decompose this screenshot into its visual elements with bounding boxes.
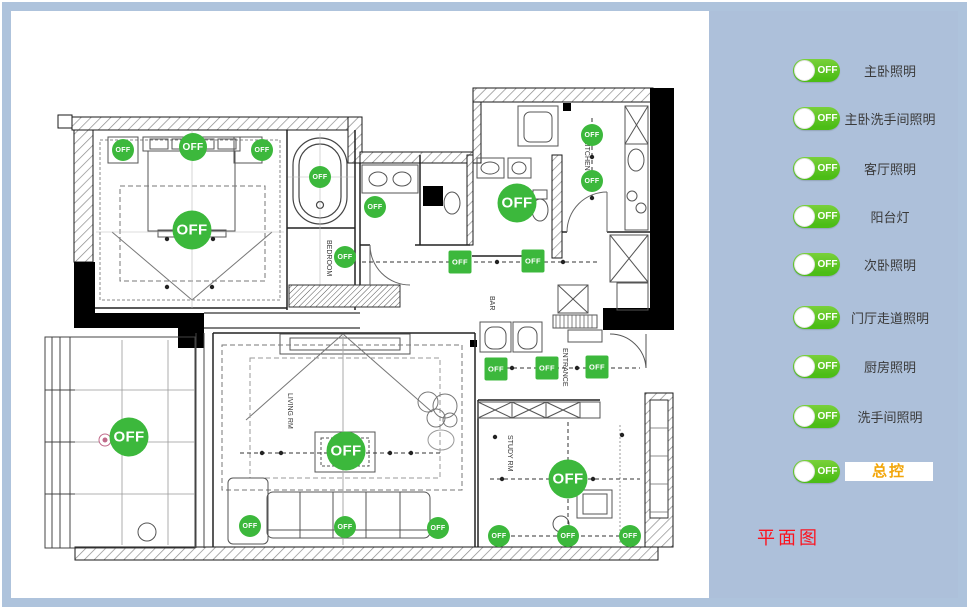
plan-light-button-6[interactable]: OFF xyxy=(364,196,386,218)
plan-light-button-23[interactable]: OFF xyxy=(557,525,579,547)
plan-light-button-1[interactable]: OFF xyxy=(112,139,134,161)
toggle-knob xyxy=(794,461,815,482)
caption-floor-plan-label: 平面图 xyxy=(757,524,820,550)
toggle-state-label: OFF xyxy=(815,65,840,76)
toggle-label-living-room-light: 客厅照明 xyxy=(842,159,938,178)
plan-light-button-15[interactable]: OFF xyxy=(239,515,261,537)
toggle-label-master-bathroom-light: 主卧洗手间照明 xyxy=(842,109,938,128)
plan-light-button-22[interactable]: OFF xyxy=(488,525,510,547)
toggle-living-room-light[interactable]: OFF xyxy=(793,157,840,180)
toggle-hallway-corridor-light[interactable]: OFF xyxy=(793,306,840,329)
plan-light-button-8[interactable]: OFF xyxy=(498,184,537,223)
toggle-state-label: OFF xyxy=(815,259,840,270)
plan-light-button-7[interactable]: OFF xyxy=(334,246,356,268)
toggle-row-hallway-corridor-light: OFF门厅走道照明 xyxy=(793,306,938,329)
plan-light-button-14[interactable]: OFF xyxy=(327,432,366,471)
toggle-knob xyxy=(794,60,815,81)
toggle-knob xyxy=(794,254,815,275)
toggle-row-kitchen-light: OFF厨房照明 xyxy=(793,355,938,378)
toggle-row-master-bedroom-light: OFF主卧照明 xyxy=(793,59,938,82)
toggle-master-bathroom-light[interactable]: OFF xyxy=(793,107,840,130)
toggle-label-master-switch: 总控 xyxy=(845,462,933,481)
toggle-second-bedroom-light[interactable]: OFF xyxy=(793,253,840,276)
smart-home-panel: KITCHEN ENTRANCE STUDY RM LIVING RM BEDR… xyxy=(0,0,969,609)
toggle-knob xyxy=(794,307,815,328)
toggle-master-switch[interactable]: OFF xyxy=(793,460,840,483)
plan-light-button-21[interactable]: OFF xyxy=(549,460,588,499)
plan-light-button-5[interactable]: OFF xyxy=(309,166,331,188)
plan-light-button-2[interactable]: OFF xyxy=(179,133,207,161)
toggle-knob xyxy=(794,158,815,179)
plan-light-button-19[interactable]: OFF xyxy=(536,357,559,380)
plan-light-button-13[interactable]: OFF xyxy=(110,418,149,457)
toggle-label-hallway-corridor-light: 门厅走道照明 xyxy=(842,308,938,327)
plan-light-button-3[interactable]: OFF xyxy=(251,139,273,161)
toggle-knob xyxy=(794,356,815,377)
toggle-row-master-bathroom-light: OFF主卧洗手间照明 xyxy=(793,107,938,130)
toggle-bathroom-light[interactable]: OFF xyxy=(793,405,840,428)
plan-light-button-12[interactable]: OFF xyxy=(522,250,545,273)
toggle-row-second-bedroom-light: OFF次卧照明 xyxy=(793,253,938,276)
toggle-state-label: OFF xyxy=(815,361,840,372)
toggle-knob xyxy=(794,406,815,427)
toggle-label-master-bedroom-light: 主卧照明 xyxy=(842,61,938,80)
toggle-state-label: OFF xyxy=(815,163,840,174)
toggle-row-living-room-light: OFF客厅照明 xyxy=(793,157,938,180)
toggle-row-master-switch: OFF总控 xyxy=(793,460,933,483)
toggle-label-bathroom-light: 洗手间照明 xyxy=(842,407,938,426)
plan-light-button-9[interactable]: OFF xyxy=(581,124,603,146)
plan-light-button-4[interactable]: OFF xyxy=(173,211,212,250)
toggle-row-balcony-light: OFF阳台灯 xyxy=(793,205,938,228)
plan-light-button-10[interactable]: OFF xyxy=(581,170,603,192)
toggle-knob xyxy=(794,206,815,227)
toggle-state-label: OFF xyxy=(815,113,840,124)
plan-light-button-16[interactable]: OFF xyxy=(334,516,356,538)
control-sidebar: 平面图 OFF主卧照明OFF主卧洗手间照明OFF客厅照明OFF阳台灯OFF次卧照… xyxy=(709,2,967,607)
plan-light-button-18[interactable]: OFF xyxy=(485,358,508,381)
plan-light-button-17[interactable]: OFF xyxy=(427,517,449,539)
plan-light-button-11[interactable]: OFF xyxy=(449,251,472,274)
toggle-label-kitchen-light: 厨房照明 xyxy=(842,357,938,376)
toggle-master-bedroom-light[interactable]: OFF xyxy=(793,59,840,82)
toggle-row-bathroom-light: OFF洗手间照明 xyxy=(793,405,938,428)
toggle-balcony-light[interactable]: OFF xyxy=(793,205,840,228)
plan-light-button-24[interactable]: OFF xyxy=(619,525,641,547)
toggle-knob xyxy=(794,108,815,129)
toggle-state-label: OFF xyxy=(815,312,840,323)
toggle-state-label: OFF xyxy=(815,466,840,477)
toggle-label-second-bedroom-light: 次卧照明 xyxy=(842,255,938,274)
toggle-state-label: OFF xyxy=(815,211,840,222)
toggle-kitchen-light[interactable]: OFF xyxy=(793,355,840,378)
toggle-label-balcony-light: 阳台灯 xyxy=(842,207,938,226)
plan-light-button-20[interactable]: OFF xyxy=(586,356,609,379)
toggle-state-label: OFF xyxy=(815,411,840,422)
